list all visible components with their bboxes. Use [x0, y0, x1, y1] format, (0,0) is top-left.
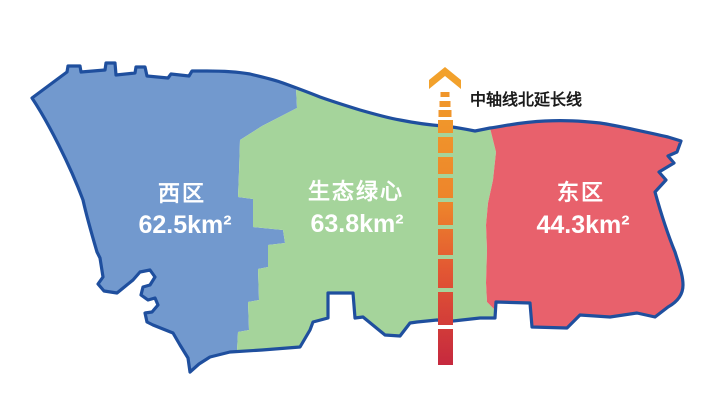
axis-label: 中轴线北延长线 [470, 90, 582, 109]
axis-segment [438, 137, 453, 153]
districts-map-svg: 中轴线北延长线 西区 62.5km² 生态绿心 63.8km² 东区 44.3k… [0, 0, 718, 407]
axis-dash [441, 92, 450, 97]
axis-dash [439, 110, 452, 117]
region-east-name: 东区 [557, 180, 605, 205]
axis-segment [438, 157, 453, 174]
axis-arrow-icon [429, 67, 461, 89]
axis-segment [438, 120, 453, 133]
axis-segment [438, 202, 453, 225]
axis-segment [438, 292, 453, 325]
map-canvas: 中轴线北延长线 西区 62.5km² 生态绿心 63.8km² 东区 44.3k… [0, 0, 718, 407]
region-west-area: 62.5km² [138, 211, 231, 239]
axis-segment [438, 178, 453, 198]
axis-segment [438, 329, 453, 365]
region-green-heart-area: 63.8km² [310, 210, 403, 238]
axis-dash [440, 101, 451, 107]
region-east-area: 44.3km² [536, 211, 629, 239]
axis-segment [438, 229, 453, 255]
axis-segment [438, 259, 453, 288]
region-west-name: 西区 [158, 181, 206, 206]
region-green-heart-name: 生态绿心 [308, 179, 404, 204]
